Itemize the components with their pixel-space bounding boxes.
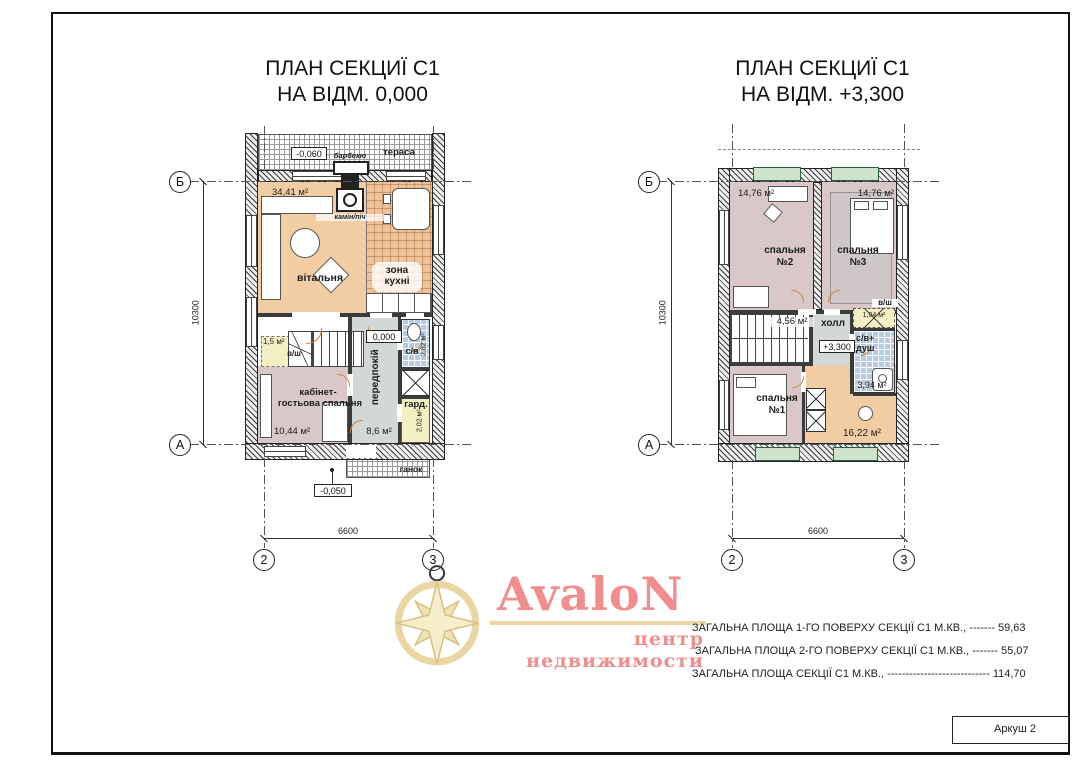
plan2-bedroom1-label1: спальня xyxy=(752,394,802,405)
window xyxy=(433,205,444,255)
drawing-sheet: Аркуш 2 ПЛАН СЕКЦИЇ С1 НА ВІДМ. 0,000 Б … xyxy=(0,0,1080,763)
plan1-office-area: 10,44 м² xyxy=(274,427,324,437)
wall xyxy=(730,363,813,366)
plan2-axis3-top xyxy=(904,124,905,170)
plan1-office-label1: кабінет- xyxy=(288,388,348,398)
bed-single xyxy=(733,286,769,308)
plan1-office-label2: гостьова спальня xyxy=(272,399,368,409)
porch-leader xyxy=(332,470,333,484)
plan1-title: ПЛАН СЕКЦИЇ С1 НА ВІДМ. 0,000 xyxy=(210,56,495,108)
plan1-title-line1: ПЛАН СЕКЦИЇ С1 xyxy=(210,56,495,82)
plan1-vdim-label: 10300 xyxy=(191,296,200,330)
summary-line-3: ЗАГАЛЬНА ПЛОЩА СЕКЦІЇ С1 М.КВ., --------… xyxy=(692,668,1026,680)
plan2-closet-label: в/ш xyxy=(872,299,898,307)
plan1-terrace-label: тераса xyxy=(379,148,419,158)
coffee-table xyxy=(290,228,320,258)
plan2-axis2-bottom xyxy=(732,460,733,548)
plan2-bath-area: 3,94 м² xyxy=(853,381,891,390)
plan1-closet-label: в/ш xyxy=(282,350,306,358)
plan2-axis-a-line xyxy=(658,444,940,445)
office-wardrobe xyxy=(260,374,272,438)
plan2-axis-b-line xyxy=(658,181,940,182)
plan2-hdim-line xyxy=(732,538,904,539)
plan1-porch-label: ганок xyxy=(394,465,428,474)
sofa xyxy=(261,196,333,214)
plan2-axis-a-label: А xyxy=(645,438,653,452)
pillow xyxy=(854,201,869,210)
plan1-hdim-line xyxy=(264,538,433,539)
chair xyxy=(383,214,391,224)
window xyxy=(246,215,257,267)
plan2-wall-top xyxy=(718,168,909,182)
plan1-terrace-level: -0,060 xyxy=(291,147,327,160)
plan1-axis-b-line xyxy=(190,181,472,182)
pillow xyxy=(736,377,756,388)
plan1-axis2-bottom xyxy=(264,458,265,548)
plan2-hall-label: холл xyxy=(817,319,849,330)
plan2-stairs-area: 4,56 м² xyxy=(770,317,814,327)
plan1-hallway-label: передпокій xyxy=(371,332,382,422)
logo-name: AvaloN xyxy=(497,567,712,621)
plan2-bath-label2: душ xyxy=(856,344,882,353)
plan1-closet-area: 1,5 м² xyxy=(263,338,293,346)
porch-leader-dot xyxy=(330,468,334,472)
plan2-bedroom2-label1: спальня xyxy=(760,246,810,257)
summary-line-2: ЗАГАЛЬНА ПЛОЩА 2-ГО ПОВЕРХУ СЕКЦІЇ С1 М.… xyxy=(695,645,1029,657)
plan2-closet-area: 1,04 м² xyxy=(856,312,892,319)
plan2-axis3-circle: 3 xyxy=(893,549,915,571)
logo-underline xyxy=(490,621,706,625)
plan2-axis-b-label: Б xyxy=(645,175,653,189)
plan1-axis-a-line xyxy=(190,444,472,445)
plan2-axis3-label: 3 xyxy=(901,553,908,567)
sheet-label: Аркуш 2 xyxy=(975,724,1055,736)
planter-box xyxy=(833,447,878,461)
porch-level-value: -0,050 xyxy=(320,486,346,496)
floor-level-value: +3,300 xyxy=(823,342,851,352)
plan2-bedroom3-area: 14,76 м² xyxy=(846,189,894,199)
window xyxy=(897,340,908,380)
summary-line-3-label: ЗАГАЛЬНА ПЛОЩА СЕКЦІЇ С1 М.КВ., --------… xyxy=(692,668,990,680)
plan1-axis3-bottom xyxy=(433,458,434,548)
logo-subtitle: центр недвижимости xyxy=(490,628,704,672)
door-gap xyxy=(292,312,340,318)
stairs-rail xyxy=(732,338,808,339)
plan1-axis2-circle: 2 xyxy=(253,549,275,571)
wall xyxy=(813,182,822,310)
plan1-hdim-label: 6600 xyxy=(328,527,368,536)
plan2-bedroom3-label1: спальня xyxy=(833,246,883,257)
plan1-vdim-line xyxy=(203,182,204,445)
plan1-bbq-label: барбекю xyxy=(331,152,369,160)
plan2-hdim-label: 6600 xyxy=(798,527,838,536)
toilet xyxy=(407,323,421,341)
plan2-bedroom2-label2: №2 xyxy=(772,258,798,269)
plan2-open-area: 16,22 м² xyxy=(838,429,886,440)
wall xyxy=(853,393,896,396)
plan2-bedroom1-label2: №1 xyxy=(764,406,790,417)
hall-cabinet xyxy=(806,410,826,432)
terrace-level-value: -0,060 xyxy=(296,149,322,159)
summary-line-3-value: 114,70 xyxy=(993,668,1026,680)
chair xyxy=(383,194,391,204)
plan1-axis2-label: 2 xyxy=(261,553,268,567)
plan1-wardrobe-area: 2,02 м² xyxy=(416,404,423,438)
window xyxy=(386,171,426,181)
plan2-title: ПЛАН СЕКЦИЇ С1 НА ВІДМ. +3,300 xyxy=(680,56,965,108)
window xyxy=(264,446,306,457)
planter-box xyxy=(831,167,879,181)
plan1-axis3-top xyxy=(433,126,434,172)
door-gap xyxy=(824,309,840,315)
plan1-porch-level: -0,050 xyxy=(314,484,352,497)
summary-line-1-value: 59,63 xyxy=(998,622,1026,634)
kitchen-counter xyxy=(366,293,432,313)
plan2-axis3-bottom xyxy=(904,460,905,548)
plan2-roof-overhang xyxy=(718,149,920,150)
plan1-title-line2: НА ВІДМ. 0,000 xyxy=(210,82,495,108)
window xyxy=(433,325,444,360)
planter-box xyxy=(755,447,800,461)
plan1-kitchen-label1: зона xyxy=(373,266,421,277)
summary-line-1: ЗАГАЛЬНА ПЛОЩА 1-ГО ПОВЕРХУ СЕКЦІЇ С1 М.… xyxy=(692,622,1026,634)
plan1-axis-a-circle: А xyxy=(169,434,191,456)
plan1-fireplace-label: камін/піч xyxy=(316,214,384,221)
window xyxy=(719,210,729,265)
plan1-axis-b-circle: Б xyxy=(169,171,191,193)
plan2-floor-level: +3,300 xyxy=(819,340,855,353)
bbq-unit xyxy=(333,161,369,175)
plan1-kitchen-label2: кухні xyxy=(373,277,421,288)
plan1-wall-right xyxy=(432,133,445,460)
fireplace-ring xyxy=(343,193,357,207)
plan1-axis-a-label: А xyxy=(176,438,184,452)
hall-cabinet xyxy=(806,388,826,410)
summary-line-2-label: ЗАГАЛЬНА ПЛОЩА 2-ГО ПОВЕРХУ СЕКЦІЇ С1 М.… xyxy=(695,645,998,657)
window xyxy=(246,297,257,347)
window xyxy=(719,380,729,430)
planter-box xyxy=(753,167,801,181)
entry-door-gap xyxy=(346,445,376,458)
plan2-vdim-label: 10300 xyxy=(658,296,667,330)
plan1-washer xyxy=(401,370,430,396)
plan1-axis-b-label: Б xyxy=(176,175,184,189)
sofa xyxy=(261,214,281,300)
plan2-bedroom3-label2: №3 xyxy=(845,258,871,269)
plan1-axis2-top xyxy=(264,126,265,172)
window xyxy=(897,205,908,260)
summary-line-1-label: ЗАГАЛЬНА ПЛОЩА 1-ГО ПОВЕРХУ СЕКЦІЇ С1 М.… xyxy=(692,622,995,634)
plan2-axis-b-circle: Б xyxy=(638,171,660,193)
door-gap xyxy=(798,309,816,315)
plan2-axis2-circle: 2 xyxy=(721,549,743,571)
plan1-living-label: вітальня xyxy=(292,273,348,284)
plan2-axis2-label: 2 xyxy=(729,553,736,567)
plan2-title-line2: НА ВІДМ. +3,300 xyxy=(680,82,965,108)
summary-line-2-value: 55,07 xyxy=(1001,645,1029,657)
compass-logo-icon xyxy=(381,560,493,674)
plan2-wall-bottom xyxy=(718,443,909,462)
plan2-title-line1: ПЛАН СЕКЦИЇ С1 xyxy=(680,56,965,82)
plan1-hallway-area: 8,6 м² xyxy=(359,427,399,437)
plan1-bathroom-area: 2,82 м² xyxy=(420,328,427,362)
plan2-bedroom2-area: 14,76 м² xyxy=(738,189,790,199)
plan2-axis-a-circle: А xyxy=(638,434,660,456)
pillow xyxy=(873,201,888,210)
plan2-axis2-top xyxy=(732,124,733,170)
table-round xyxy=(858,406,873,421)
wall xyxy=(853,328,895,330)
dining-table xyxy=(392,188,430,230)
plan2-vdim-line xyxy=(671,182,672,445)
plan1-living-area: 34,41 м² xyxy=(272,188,324,198)
